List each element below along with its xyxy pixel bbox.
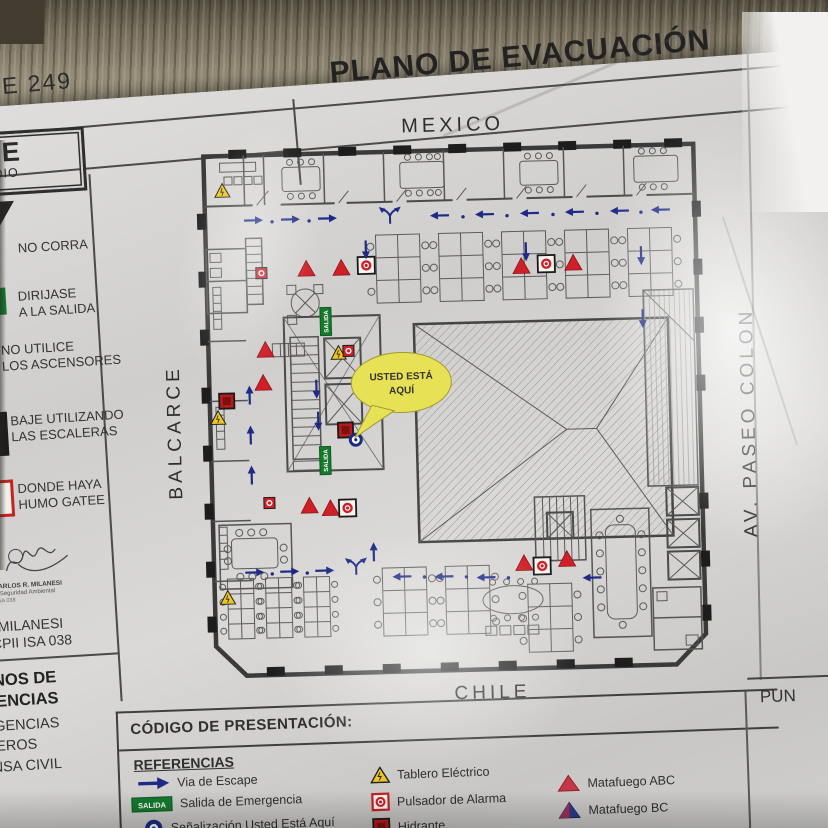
hydrant-box-icon xyxy=(372,817,392,828)
plan-matafuego xyxy=(515,555,532,571)
legend-item-matafuego-bc: Matafuego BC xyxy=(557,797,669,820)
extinguisher-abc-triangle-icon xyxy=(556,773,581,793)
plan-dot xyxy=(307,219,310,222)
plan-alarmbox xyxy=(533,557,550,574)
plan-tablero xyxy=(220,590,235,604)
legend-item-salida: SALIDA Salida de Emergencia xyxy=(131,791,303,813)
alarm-button-icon xyxy=(371,792,391,812)
plan-dot xyxy=(306,571,309,574)
plan-desk-cluster xyxy=(429,232,493,302)
plan-alarmbox xyxy=(538,255,555,272)
plan-arrow-r xyxy=(315,566,334,574)
plan-matafuego xyxy=(301,497,318,513)
signature-reg: ISA 038 xyxy=(0,597,16,604)
plan-pulsador xyxy=(264,497,275,508)
down-arrow-icon xyxy=(0,201,16,246)
plan-furniture-layer xyxy=(209,147,702,661)
instruction-humo-gatee: DONDE HAYA HUMO GATEE xyxy=(17,476,105,514)
electric-panel-triangle-icon xyxy=(370,766,391,785)
plan-tablero xyxy=(215,183,230,197)
pun-box: PUN xyxy=(747,674,828,828)
street-label-left: BALCARCE xyxy=(163,365,188,500)
plan-arrow-r xyxy=(244,216,263,224)
svg-text:SALIDA: SALIDA xyxy=(138,800,167,810)
plan-matafuego xyxy=(257,341,274,357)
plan-arrow-l xyxy=(610,207,629,215)
meeting-table xyxy=(281,159,320,200)
plan-arrow-u xyxy=(246,425,254,444)
plan-dot xyxy=(595,212,598,215)
professional-license: ULA: CPII ISA 038 xyxy=(0,631,72,654)
plan-pulsador xyxy=(343,345,354,356)
plan-alarmbox xyxy=(339,499,356,516)
sign-line2: DE INCENDIO xyxy=(0,162,84,190)
plan-dot xyxy=(271,572,274,575)
plan-arrow-u xyxy=(247,465,255,484)
plan-arrow-l xyxy=(392,572,411,580)
sidebar-section-divider xyxy=(0,652,120,664)
plan-dot xyxy=(270,220,273,223)
plan-matafuego xyxy=(322,500,339,516)
escape-arrow-icon xyxy=(136,777,170,790)
plan-tablero xyxy=(211,411,226,425)
wall-shadow-corner xyxy=(0,0,44,44)
plan-arrow-l xyxy=(520,209,539,217)
legend-item-via-escape: Via de Escape xyxy=(136,773,258,791)
instruction-no-ascensores: NO UTILICE LOS ASCENSORES xyxy=(1,336,122,376)
crawl-smoke-icon xyxy=(0,479,15,518)
emergency-phones-list: MERGENCIAS OMBEROS EFENSA CIVIL AME xyxy=(0,713,64,800)
plan-split xyxy=(379,206,401,224)
plan-arrow-u xyxy=(370,542,378,561)
exit-sign-icon: ➤ xyxy=(0,288,7,317)
photo-stage: E 249 PLANO DE EVACUACIÓN UERDE DE INCEN… xyxy=(0,0,828,828)
plan-desk-v xyxy=(295,576,339,637)
pun-label: PUN xyxy=(760,686,797,706)
plan-matafuego xyxy=(255,374,272,390)
street-label-right: AV. PASEO COLON xyxy=(735,307,762,537)
plan-arrow-r xyxy=(245,568,264,576)
plan-matafuego xyxy=(298,260,315,276)
legend-panel: CÓDIGO DE PRESENTACIÓN: REFERENCIAS Via … xyxy=(116,688,783,828)
emergency-phones-title: ÉFONOS DE ERGENCIAS xyxy=(0,667,59,716)
plan-arrow-r xyxy=(281,215,300,223)
plan-desk-cluster xyxy=(618,227,682,297)
plan-arrow-r xyxy=(318,214,337,222)
plan-salida xyxy=(319,446,331,474)
plan-arrow-l xyxy=(475,210,494,218)
plan-desk-cluster xyxy=(366,234,430,304)
salida-badge-icon: SALIDA xyxy=(131,796,174,813)
plan-matafuego xyxy=(565,254,582,270)
legend-item-hidrante: Hidrante xyxy=(372,815,446,828)
svg-text:AQUÍ: AQUÍ xyxy=(389,383,415,397)
plan-desk-cluster xyxy=(519,583,583,653)
plan-salida xyxy=(320,307,332,335)
floor-plan: SALIDA MEXICO CHILE BALCARCE AV. PASE xyxy=(132,87,788,729)
plan-pulsador xyxy=(256,268,267,279)
plan-arrow-u xyxy=(245,385,253,404)
you-are-here-ring-icon xyxy=(143,818,164,828)
plan-dot xyxy=(505,214,508,217)
plan-split xyxy=(345,557,367,575)
plan-arrow-d xyxy=(522,242,530,261)
plan-dot xyxy=(423,575,426,578)
plan-desk-v xyxy=(257,577,301,638)
plan-matafuego xyxy=(558,551,575,567)
plan-matafuego xyxy=(513,258,530,274)
plan-matafuego xyxy=(333,259,350,275)
meeting-table xyxy=(633,147,678,190)
signature-scribble xyxy=(1,539,81,582)
plan-arrow-l xyxy=(565,208,584,216)
legend-subheader: REFERENCIAS xyxy=(133,754,234,773)
legend-item-matafuego-abc: Matafuego ABC xyxy=(556,770,675,793)
plan-hidrante xyxy=(219,393,234,408)
plan-desk-cluster xyxy=(555,229,619,299)
plan-dot xyxy=(639,210,642,213)
balcony-hatch xyxy=(643,289,698,486)
instruction-dirijase: DIRIJASE A LA SALIDA xyxy=(17,284,95,321)
plan-arrow-d xyxy=(637,246,645,265)
plan-alarmbox xyxy=(358,257,375,274)
plan-dot xyxy=(551,213,554,216)
legend-item-usted-esta-aqui: Señalización Usted Está Aquí xyxy=(143,812,335,828)
phone-item: AME xyxy=(0,774,64,800)
plan-dot xyxy=(461,215,464,218)
plan-desk-v xyxy=(219,578,263,639)
plan-arrow-l xyxy=(430,211,449,219)
plan-arrow-l xyxy=(651,205,670,213)
instruction-no-corra: NO CORRA xyxy=(17,236,88,256)
recuerde-incendio-sign: UERDE DE INCENDIO xyxy=(0,126,87,204)
plan-arrow-r xyxy=(280,567,299,575)
floor-plan-svg: SALIDA MEXICO CHILE BALCARCE AV. PASE xyxy=(132,87,788,729)
extinguisher-bc-triangle-icon xyxy=(557,800,582,820)
legend-header: CÓDIGO DE PRESENTACIÓN: xyxy=(130,713,353,738)
legend-item-tablero: Tablero Eléctrico xyxy=(370,763,490,785)
legend-item-pulsador: Pulsador de Alarma xyxy=(371,788,507,812)
stairs-icon xyxy=(0,412,9,457)
instruction-baje-escaleras: BAJE UTILIZANDO LAS ESCALERAS xyxy=(10,407,125,446)
street-label-top: MEXICO xyxy=(401,113,504,138)
